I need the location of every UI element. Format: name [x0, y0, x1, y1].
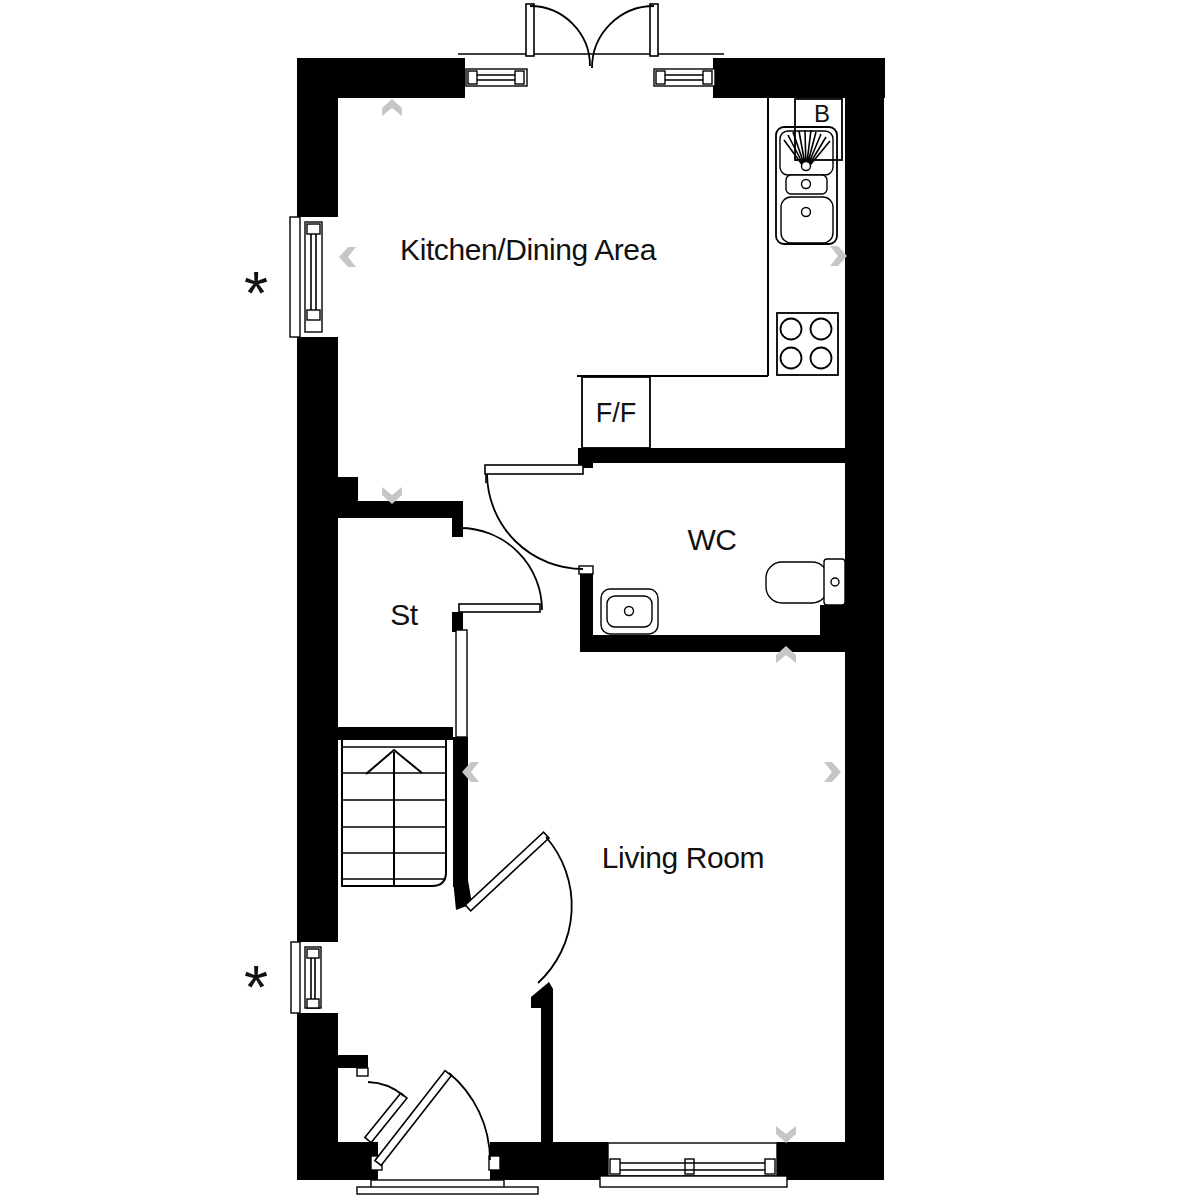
chevron-down-window-icon [776, 1126, 796, 1143]
window-asterisk-lower: * [244, 952, 268, 1021]
window-top-right [654, 69, 715, 86]
window-asterisk-upper: * [244, 258, 268, 327]
french-door-right-swing-arc [592, 6, 654, 68]
label-wc: WC [687, 523, 736, 556]
wc-toilet [766, 559, 845, 605]
kitchen-sink [776, 127, 837, 244]
french-door-left-swing-arc [530, 6, 590, 66]
jamb-store-door-bottom [452, 612, 463, 632]
wall-front-stub [338, 1055, 368, 1068]
jamb-living-door-stop [531, 982, 553, 1008]
wall-store-top [338, 501, 463, 518]
label-fridge-freezer: F/F [596, 398, 637, 428]
label-living-room: Living Room [602, 841, 764, 874]
window-bottom [600, 1143, 787, 1187]
chevron-up-kitchen-icon [382, 99, 402, 116]
cupboard-door-swing-arc [368, 1082, 404, 1096]
floor-plan-canvas: Kitchen/Dining Area WC St Living Room F/… [0, 0, 1200, 1199]
label-store: St [390, 598, 419, 631]
french-door-right-leaf [650, 4, 658, 56]
chevron-left-upper-window-icon [339, 247, 356, 267]
wall-stairs-side [453, 737, 468, 887]
stairs [342, 740, 446, 886]
floor-plan-svg: Kitchen/Dining Area WC St Living Room F/… [0, 0, 1200, 1199]
label-kitchen-dining: Kitchen/Dining Area [400, 233, 657, 266]
jamb-notch-wc-wall [579, 566, 593, 574]
jamb-notch-cupboard [357, 1068, 368, 1076]
living-door-leaf [465, 832, 549, 911]
wall-left-middle [297, 337, 338, 942]
wall-bottom-middle [490, 1142, 608, 1180]
wall-stairs-top [338, 727, 453, 740]
kitchen-door-swing-arc [487, 474, 583, 569]
living-door-swing-arc [538, 837, 572, 983]
wall-kitchen-wc [578, 448, 845, 463]
front-door-step-outer [357, 1187, 538, 1194]
wall-bottom-right [777, 1142, 884, 1180]
hob [777, 313, 838, 375]
front-door-swing-arc [449, 1073, 490, 1160]
label-boiler: B [814, 100, 830, 127]
wall-wc-toilet-stub [820, 605, 845, 637]
wall-bottom-left [297, 1142, 378, 1180]
store-partition-lower [456, 630, 467, 737]
wc-basin [601, 589, 658, 634]
chevron-right-living-icon [824, 762, 841, 782]
store-door-swing-arc [460, 528, 542, 610]
window-left-upper [290, 217, 322, 337]
wall-right [845, 58, 884, 1180]
window-left-lower [291, 942, 321, 1013]
french-door-left-leaf [526, 4, 534, 56]
kitchen-door-leaf [485, 465, 583, 474]
wall-left-upper [297, 58, 338, 217]
chevron-right-sink-icon [830, 246, 847, 266]
wall-hall-living [541, 1005, 553, 1142]
wall-wc-bottom [580, 635, 845, 652]
window-top-left [466, 69, 527, 86]
store-door-leaf [459, 604, 540, 612]
